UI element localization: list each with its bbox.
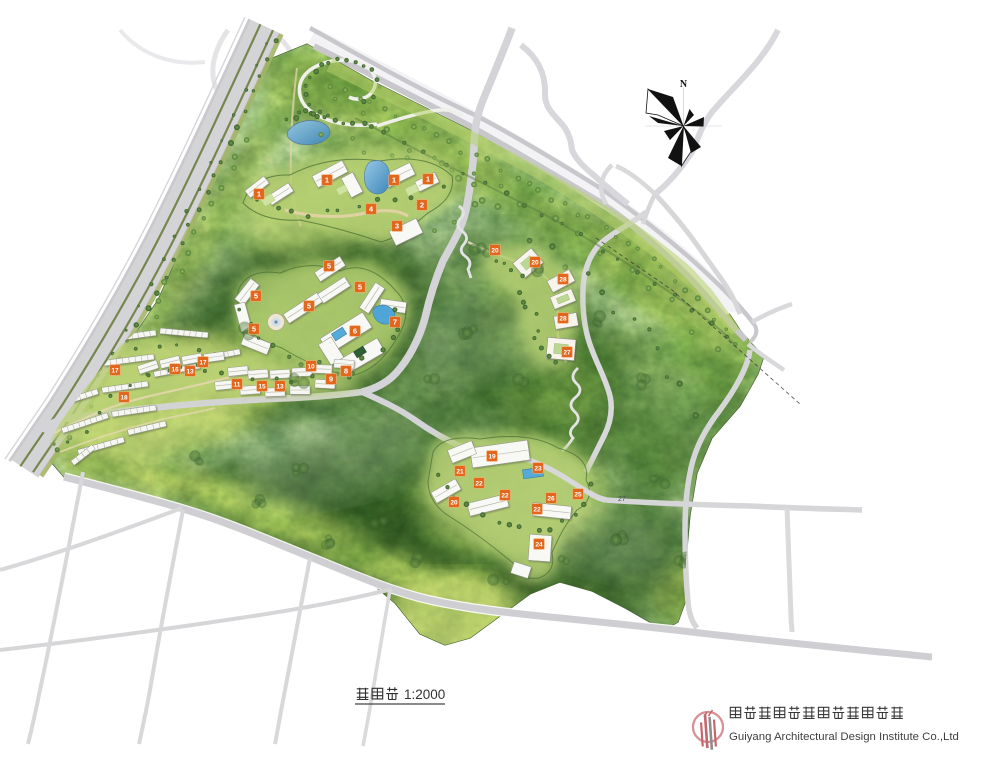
svg-text:13: 13 — [186, 369, 194, 376]
svg-text:Guiyang Architectural Design I: Guiyang Architectural Design Institute C… — [729, 731, 959, 743]
svg-text:2: 2 — [420, 201, 424, 210]
svg-text:27: 27 — [618, 496, 626, 503]
svg-text:3: 3 — [395, 222, 399, 231]
svg-text:20: 20 — [531, 260, 539, 267]
svg-text:25: 25 — [574, 492, 582, 499]
svg-text:19: 19 — [488, 454, 496, 461]
svg-text:10: 10 — [307, 364, 315, 371]
svg-text:17: 17 — [111, 368, 119, 375]
svg-text:22: 22 — [475, 481, 483, 488]
svg-text:16: 16 — [171, 367, 179, 374]
svg-text:22: 22 — [533, 507, 541, 514]
svg-text:20: 20 — [491, 248, 499, 255]
svg-text:8: 8 — [344, 367, 348, 376]
svg-text:18: 18 — [120, 395, 128, 402]
svg-text:28: 28 — [559, 316, 567, 323]
svg-text:7: 7 — [393, 318, 397, 327]
svg-text:23: 23 — [534, 466, 542, 473]
svg-text:17: 17 — [199, 360, 207, 367]
svg-text:N: N — [680, 79, 688, 90]
svg-text:27: 27 — [563, 350, 571, 357]
svg-text:13: 13 — [276, 384, 284, 391]
svg-text:21: 21 — [456, 469, 464, 476]
svg-text:6: 6 — [353, 327, 357, 336]
svg-text:22: 22 — [501, 493, 509, 500]
svg-text:20: 20 — [450, 500, 458, 507]
svg-text:9: 9 — [329, 375, 333, 384]
svg-text:11: 11 — [234, 382, 241, 389]
svg-text:28: 28 — [559, 277, 567, 284]
svg-text:26: 26 — [547, 496, 555, 503]
svg-text:24: 24 — [535, 542, 543, 549]
svg-text:1:2000: 1:2000 — [404, 687, 445, 702]
svg-text:15: 15 — [258, 384, 266, 391]
